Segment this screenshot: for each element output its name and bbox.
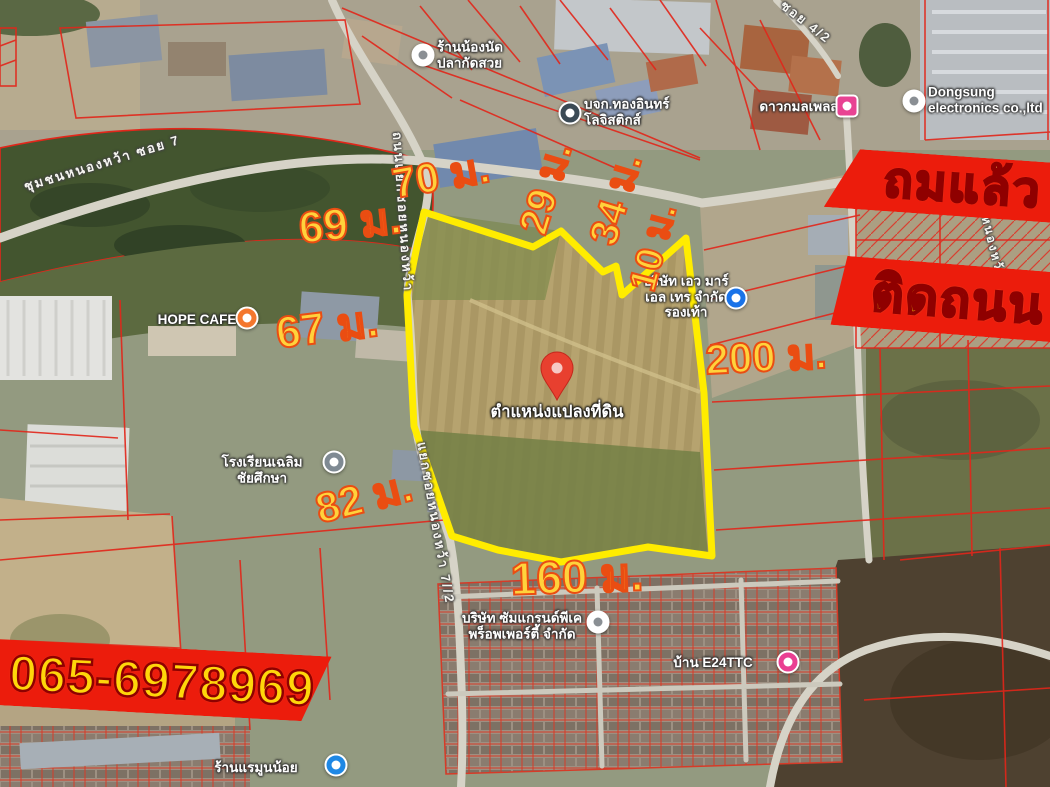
poi-label-ram-noi-shop: ร้านแรมูนน้อย bbox=[214, 760, 297, 776]
banner-land-filled-text: ถมแล้ว bbox=[882, 151, 1044, 222]
poi-label-daokamol-place: ดาวกมลเพลส bbox=[759, 99, 838, 115]
poi-label-baan-e24ttc: บ้าน E24TTC bbox=[673, 655, 752, 671]
poi-label-dongsung: Dongsungelectronics co.,ltd bbox=[928, 84, 1043, 115]
hotel-marker-icon[interactable] bbox=[836, 95, 859, 118]
business-marker-icon[interactable] bbox=[587, 611, 610, 634]
poi-label-school: โรงเรียนเฉลิมชัยศึกษา bbox=[221, 454, 302, 485]
poi-label-fish-shop: ร้านน้องนัดปลากัดสวย bbox=[437, 39, 503, 70]
measurement-67m: 67 ม. bbox=[272, 286, 382, 368]
measurement-200m: 200 ม. bbox=[704, 321, 828, 393]
measurement-160m: 160 ม. bbox=[509, 538, 644, 616]
satellite-map: ร้านน้องนัดปลากัดสวย บจก.ทองอินทร์โลจิสต… bbox=[0, 0, 1050, 787]
banner-next-to-road-text: ติดถนน bbox=[869, 262, 1047, 338]
shop-marker-icon[interactable] bbox=[412, 44, 435, 67]
pet-marker-icon[interactable] bbox=[325, 754, 348, 777]
poi-label-hope-cafe: HOPE CAFE bbox=[158, 312, 237, 328]
business-marker-icon[interactable] bbox=[559, 102, 582, 125]
home-marker-icon[interactable] bbox=[777, 651, 800, 674]
factory-marker-icon[interactable] bbox=[903, 90, 926, 113]
measurement-69m: 69 ม. bbox=[295, 183, 404, 263]
plot-location-caption: ตำแหน่งแปลงที่ดิน bbox=[491, 399, 624, 425]
cafe-marker-icon[interactable] bbox=[236, 307, 259, 330]
store-marker-icon[interactable] bbox=[725, 287, 748, 310]
poi-label-logistics: บจก.ทองอินทร์โลจิสติกส์ bbox=[584, 96, 670, 127]
